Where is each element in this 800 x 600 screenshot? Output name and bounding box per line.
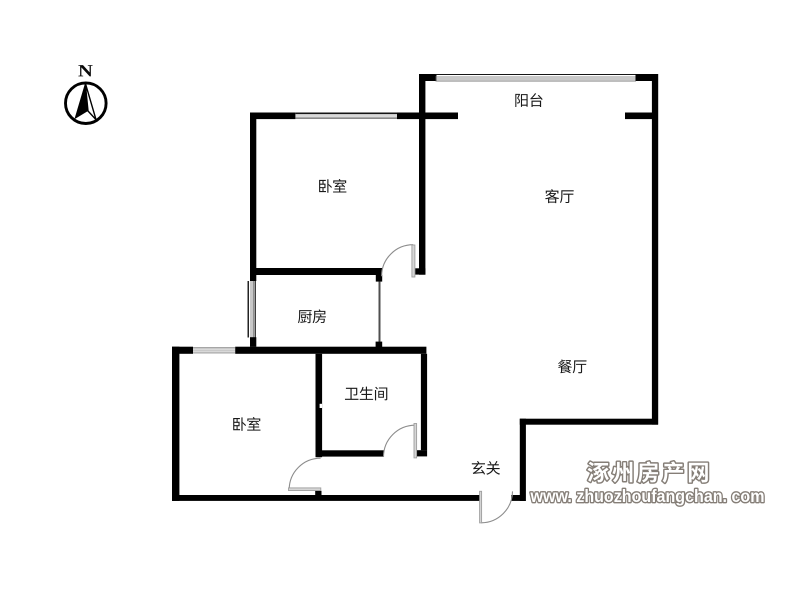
svg-text:www. zhuozhoufangchan. com: www. zhuozhoufangchan. com: [530, 486, 765, 506]
